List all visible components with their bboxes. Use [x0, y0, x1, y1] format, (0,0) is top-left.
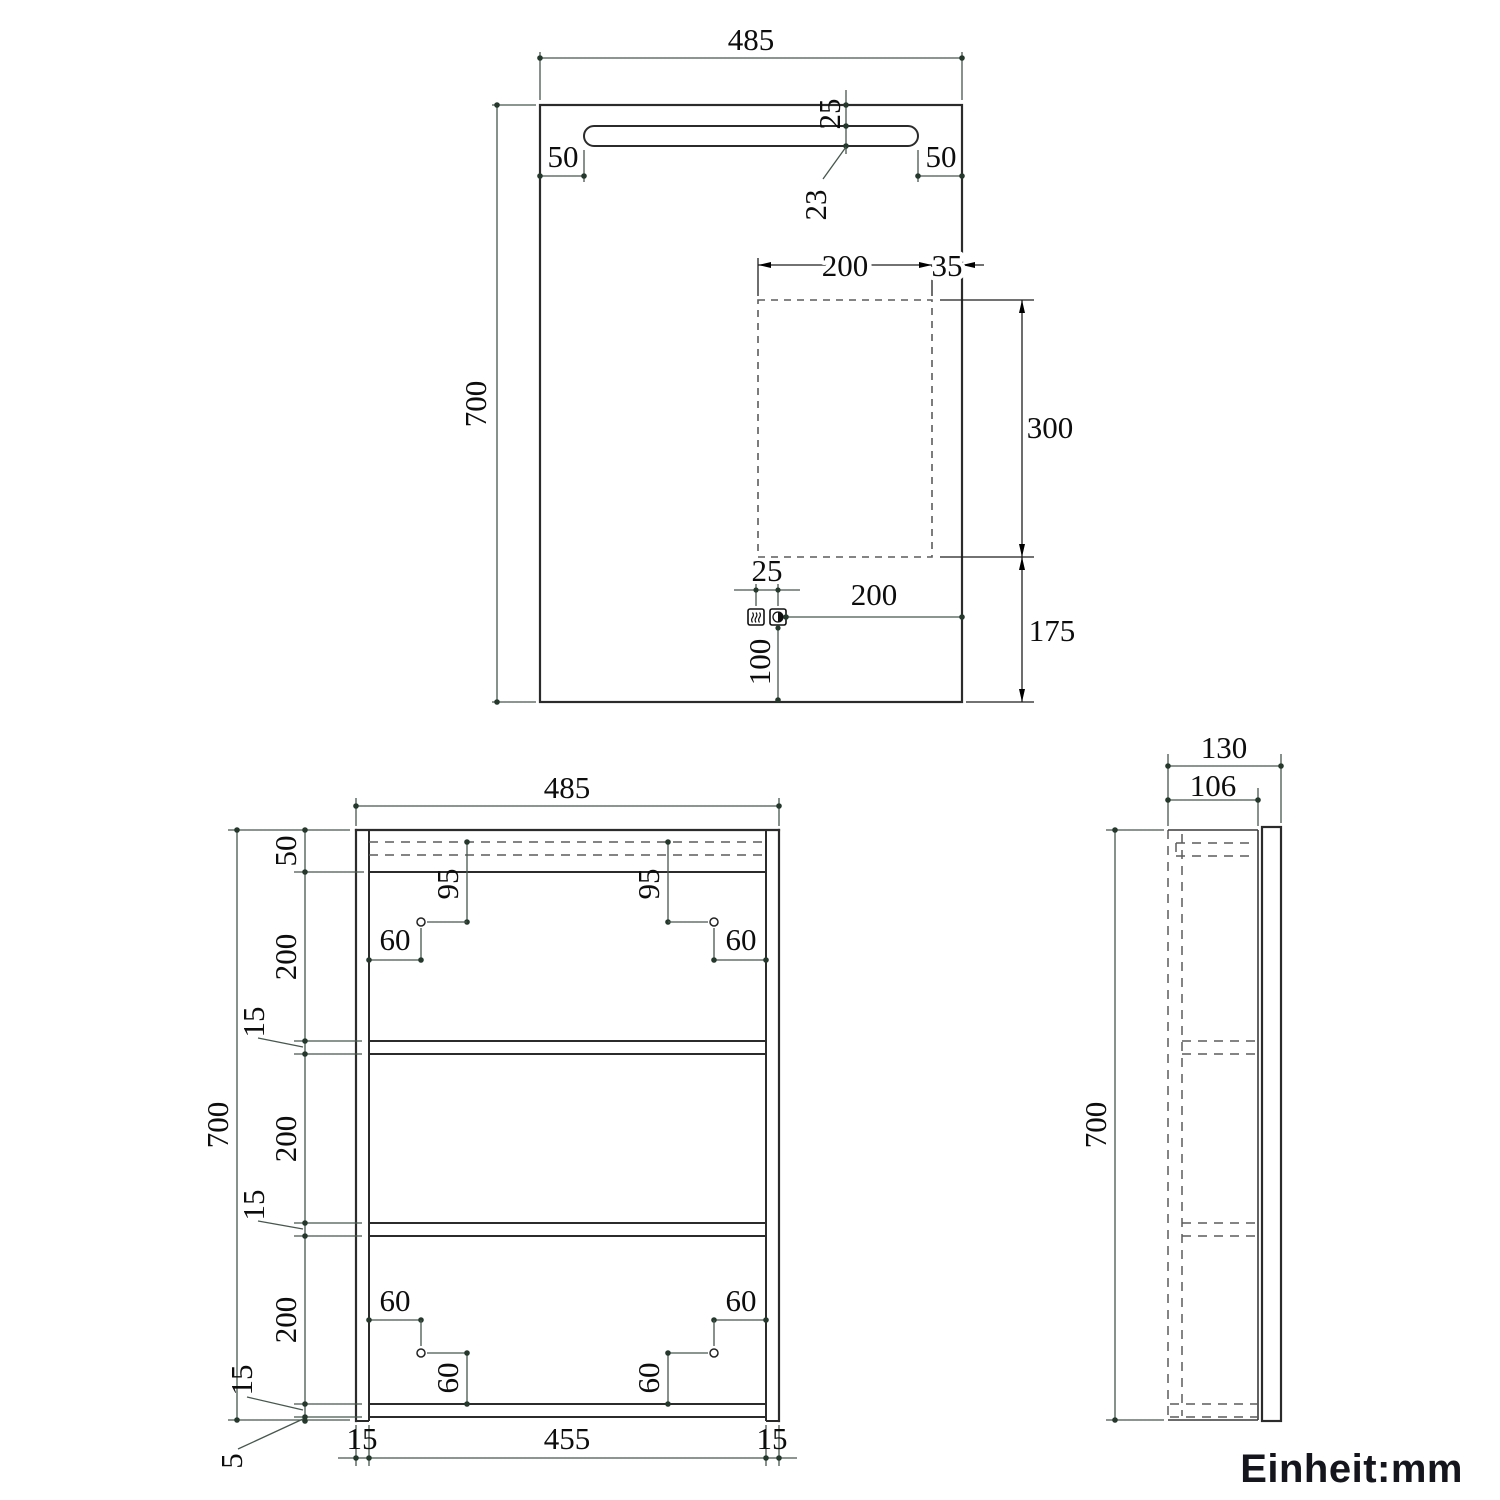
dim-label-base-width: 455: [544, 1421, 591, 1456]
hinge-hole-top-left: [417, 918, 425, 926]
canvas-background: [0, 0, 1500, 1500]
hinge-hole-top-right: [710, 918, 718, 926]
dim-label-side-height: 700: [1078, 1102, 1113, 1149]
dim-label-gap-c: 200: [268, 1297, 303, 1344]
dim-label-bottom-gap: 5: [214, 1453, 249, 1469]
dim-label-button-right: 200: [851, 577, 898, 612]
dim-label-cabinet-height: 700: [200, 1102, 235, 1149]
dim-label-gap-a: 200: [268, 934, 303, 981]
dim-label-mirror-width: 485: [728, 22, 775, 57]
dim-label-pad-right: 35: [932, 248, 963, 283]
hinge-hole-bottom-right: [710, 1349, 718, 1357]
drawing-canvas: 485 700 50 50 25: [0, 0, 1500, 1500]
dim-label-hinge-in-bot-right: 60: [726, 1283, 757, 1318]
dim-label-mirror-height: 700: [458, 381, 493, 428]
unit-label: Einheit:mm: [1240, 1447, 1463, 1491]
dim-label-hinge-in-bot-left: 60: [380, 1283, 411, 1318]
dim-label-button-bottom: 100: [742, 639, 777, 686]
dim-label-slot-left: 50: [548, 139, 579, 174]
dim-label-slot-right: 50: [926, 139, 957, 174]
dim-label-pad-height: 300: [1027, 410, 1074, 445]
dim-label-hinge-up-left: 60: [430, 1363, 465, 1394]
dim-label-shelf-c: 15: [224, 1365, 259, 1396]
dim-label-hinge-in-top-right: 60: [726, 922, 757, 957]
hinge-hole-bottom-left: [417, 1349, 425, 1357]
technical-drawing-page: 485 700 50 50 25: [0, 0, 1500, 1500]
dim-label-pad-bottom: 175: [1029, 613, 1076, 648]
dim-label-top-section: 50: [268, 836, 303, 867]
dim-label-button-gap: 25: [752, 553, 783, 588]
dim-label-hinge-in-top-left: 60: [380, 922, 411, 957]
dim-label-side-depth: 130: [1201, 730, 1248, 765]
dim-label-slot-top: 25: [812, 99, 847, 130]
dim-label-hinge-down-right: 95: [631, 869, 666, 900]
dim-label-base-left: 15: [347, 1421, 378, 1456]
dim-label-hinge-down-left: 95: [430, 869, 465, 900]
dim-label-side-body-depth: 106: [1190, 768, 1237, 803]
dim-label-slot-thickness: 23: [798, 190, 833, 221]
dim-label-pad-width: 200: [822, 248, 869, 283]
dim-label-base-right: 15: [757, 1421, 788, 1456]
dim-label-gap-b: 200: [268, 1116, 303, 1163]
dim-label-shelf-b: 15: [236, 1190, 271, 1221]
dim-label-cabinet-width: 485: [544, 770, 591, 805]
dim-label-hinge-up-right: 60: [631, 1363, 666, 1394]
dim-label-shelf-a: 15: [236, 1007, 271, 1038]
